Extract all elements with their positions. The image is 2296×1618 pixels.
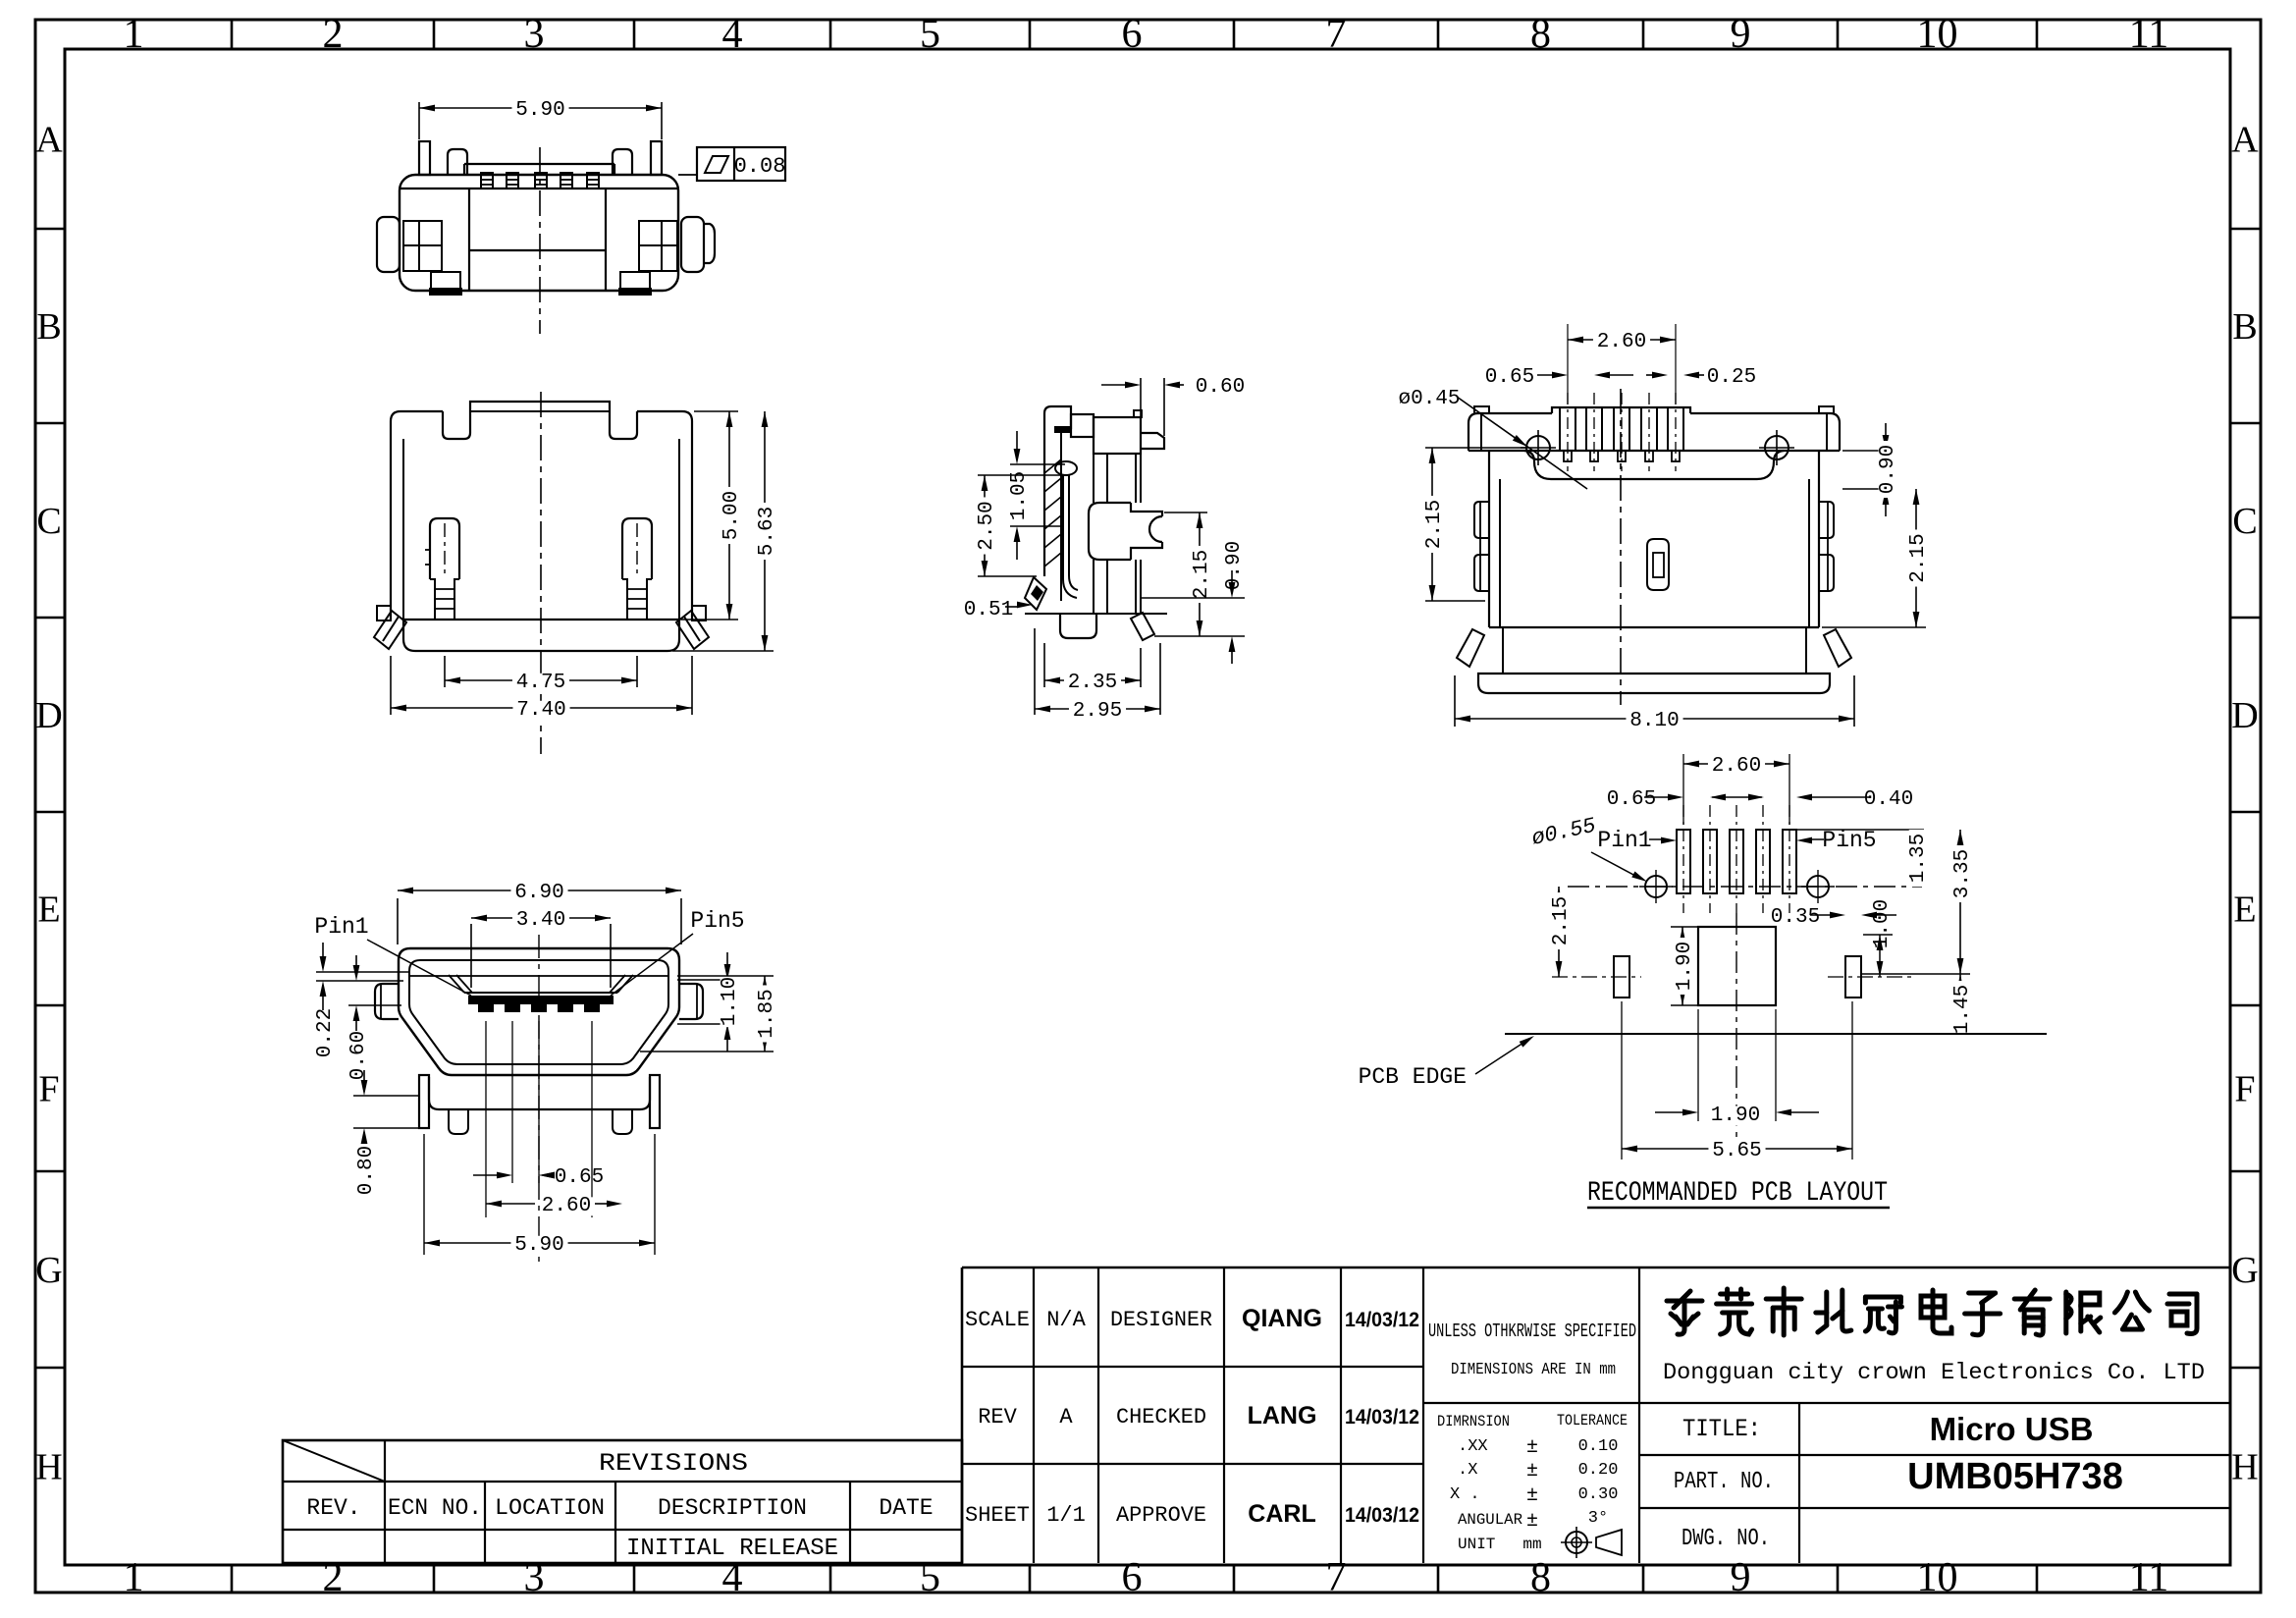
svg-text:DIMRNSION: DIMRNSION — [1437, 1413, 1510, 1430]
svg-text:5: 5 — [920, 12, 940, 57]
svg-text:0.51: 0.51 — [964, 599, 1013, 621]
svg-text:7.40: 7.40 — [516, 699, 565, 722]
svg-text:1: 1 — [124, 12, 144, 57]
svg-text:1.90: 1.90 — [1711, 1105, 1760, 1127]
svg-text:ANGULAR: ANGULAR — [1458, 1511, 1522, 1529]
svg-text:X .: X . — [1450, 1485, 1480, 1504]
svg-text:APPROVE: APPROVE — [1116, 1503, 1206, 1528]
svg-text:REV.: REV. — [306, 1495, 360, 1521]
svg-text:1.90: 1.90 — [1674, 942, 1696, 991]
svg-text:H: H — [2231, 1447, 2258, 1488]
svg-text:N/A: N/A — [1046, 1308, 1086, 1332]
svg-text:1.05: 1.05 — [1008, 471, 1031, 520]
svg-text:8: 8 — [1530, 12, 1551, 57]
svg-text:E: E — [2233, 890, 2256, 931]
svg-text:1.35: 1.35 — [1907, 834, 1930, 883]
svg-text:0.22: 0.22 — [314, 1008, 337, 1057]
svg-text:5.90: 5.90 — [515, 99, 564, 122]
svg-text:0.65: 0.65 — [1485, 366, 1534, 389]
svg-text:SHEET: SHEET — [965, 1503, 1030, 1528]
svg-text:DIMENSIONS ARE IN mm: DIMENSIONS ARE IN mm — [1451, 1361, 1616, 1379]
svg-text:11: 11 — [2129, 12, 2168, 57]
svg-text:D: D — [35, 695, 62, 736]
svg-text:14/03/12: 14/03/12 — [1345, 1406, 1419, 1429]
svg-text:CHECKED: CHECKED — [1116, 1405, 1206, 1429]
svg-text:10: 10 — [1917, 12, 1958, 57]
svg-text:2.60: 2.60 — [542, 1195, 591, 1217]
svg-text:3: 3 — [524, 12, 545, 57]
svg-text:±: ± — [1526, 1484, 1538, 1507]
svg-text:14/03/12: 14/03/12 — [1345, 1309, 1419, 1331]
svg-text:DATE: DATE — [879, 1495, 933, 1521]
svg-text:2.35: 2.35 — [1068, 672, 1117, 694]
svg-text:11: 11 — [2129, 1555, 2168, 1600]
svg-text:C: C — [36, 501, 61, 542]
svg-text:±: ± — [1526, 1460, 1538, 1483]
svg-text:RECOMMANDED PCB LAYOUT: RECOMMANDED PCB LAYOUT — [1587, 1178, 1888, 1209]
svg-text:0.65: 0.65 — [1607, 788, 1656, 811]
svg-text:mm: mm — [1522, 1536, 1541, 1553]
svg-text:LANG: LANG — [1248, 1402, 1317, 1429]
svg-text:REV: REV — [978, 1405, 1017, 1429]
svg-text:UMB05H738: UMB05H738 — [1907, 1456, 2123, 1497]
svg-text:2.60: 2.60 — [1712, 755, 1761, 778]
svg-text:A: A — [1059, 1405, 1073, 1429]
svg-text:14/03/12: 14/03/12 — [1345, 1504, 1419, 1527]
svg-text:G: G — [2231, 1250, 2258, 1291]
svg-text:ø0.45: ø0.45 — [1398, 388, 1460, 410]
svg-text:DWG. NO.: DWG. NO. — [1682, 1526, 1770, 1552]
svg-text:1.10: 1.10 — [719, 977, 741, 1026]
svg-text:1: 1 — [124, 1555, 144, 1600]
svg-text:0.60: 0.60 — [1196, 376, 1245, 399]
svg-text:CARL: CARL — [1248, 1500, 1315, 1528]
svg-text:H: H — [35, 1447, 62, 1488]
svg-text:A: A — [35, 120, 63, 161]
svg-text:A: A — [2231, 120, 2259, 161]
svg-text:Pin1: Pin1 — [1597, 828, 1651, 853]
svg-text:SCALE: SCALE — [965, 1308, 1030, 1332]
svg-text:2.15: 2.15 — [1550, 896, 1573, 945]
svg-text:5.00: 5.00 — [721, 491, 743, 540]
svg-text:G: G — [35, 1250, 62, 1291]
svg-text:0.90: 0.90 — [1877, 445, 1899, 494]
svg-text:1/1: 1/1 — [1046, 1503, 1086, 1528]
svg-text:UNLESS OTHKRWISE SPECIFIED: UNLESS OTHKRWISE SPECIFIED — [1428, 1321, 1636, 1342]
svg-text:2.15: 2.15 — [1423, 500, 1446, 549]
svg-text:5.63: 5.63 — [756, 507, 778, 556]
svg-text:0.08: 0.08 — [734, 154, 786, 179]
svg-text:±: ± — [1526, 1436, 1538, 1459]
svg-text:4.75: 4.75 — [516, 672, 565, 694]
svg-text:±: ± — [1526, 1510, 1538, 1533]
svg-text:0.25: 0.25 — [1707, 366, 1756, 389]
svg-text:F: F — [38, 1069, 59, 1110]
svg-text:8.10: 8.10 — [1629, 710, 1679, 732]
svg-text:6: 6 — [1122, 1555, 1143, 1600]
svg-text:1.00: 1.00 — [1871, 899, 1894, 948]
svg-text:0.65: 0.65 — [555, 1166, 604, 1189]
svg-text:3°: 3° — [1588, 1509, 1608, 1528]
svg-text:0.30: 0.30 — [1578, 1485, 1619, 1504]
svg-text:7: 7 — [1326, 12, 1347, 57]
svg-text:6.90: 6.90 — [514, 882, 563, 904]
svg-text:.XX: .XX — [1458, 1437, 1488, 1456]
svg-text:0.20: 0.20 — [1578, 1461, 1619, 1480]
svg-text:.X: .X — [1458, 1461, 1477, 1480]
svg-text:1.45: 1.45 — [1951, 985, 1974, 1034]
svg-text:0.90: 0.90 — [1223, 541, 1246, 590]
svg-text:0.10: 0.10 — [1578, 1437, 1619, 1456]
svg-text:3.35: 3.35 — [1951, 849, 1974, 898]
svg-text:Micro USB: Micro USB — [1930, 1411, 2094, 1447]
svg-text:2.60: 2.60 — [1597, 331, 1646, 353]
svg-text:C: C — [2232, 501, 2257, 542]
svg-text:B: B — [2232, 306, 2257, 348]
svg-text:TITLE:: TITLE: — [1682, 1415, 1761, 1443]
svg-text:REVISIONS: REVISIONS — [599, 1449, 748, 1478]
svg-text:4: 4 — [722, 12, 743, 57]
svg-text:0.60: 0.60 — [347, 1031, 370, 1080]
svg-text:2.95: 2.95 — [1073, 700, 1122, 723]
svg-text:2: 2 — [323, 12, 344, 57]
svg-text:Pin1: Pin1 — [314, 914, 368, 940]
svg-text:Dongguan city crown Electronic: Dongguan city crown Electronics Co. LTD — [1663, 1360, 2205, 1385]
svg-text:6: 6 — [1122, 12, 1143, 57]
svg-text:QIANG: QIANG — [1242, 1305, 1322, 1332]
svg-text:2.15: 2.15 — [1191, 550, 1213, 599]
svg-text:9: 9 — [1731, 12, 1751, 57]
svg-text:ECN NO.: ECN NO. — [388, 1495, 482, 1521]
svg-text:Pin5: Pin5 — [690, 908, 744, 934]
svg-text:2.15: 2.15 — [1907, 533, 1930, 582]
svg-text:F: F — [2234, 1069, 2255, 1110]
svg-text:3.40: 3.40 — [516, 909, 565, 932]
svg-text:9: 9 — [1731, 1555, 1751, 1600]
svg-text:D: D — [2231, 695, 2258, 736]
svg-text:1.85: 1.85 — [756, 989, 778, 1038]
svg-text:E: E — [37, 890, 60, 931]
svg-text:INITIAL RELEASE: INITIAL RELEASE — [626, 1536, 838, 1562]
svg-text:TOLERANCE: TOLERANCE — [1557, 1412, 1628, 1429]
svg-text:0.80: 0.80 — [355, 1146, 378, 1195]
svg-text:LOCATION: LOCATION — [495, 1495, 605, 1521]
svg-text:B: B — [36, 306, 61, 348]
svg-text:UNIT: UNIT — [1458, 1536, 1495, 1553]
svg-text:PART. NO.: PART. NO. — [1674, 1469, 1774, 1495]
svg-text:PCB EDGE: PCB EDGE — [1359, 1064, 1467, 1090]
svg-text:0.40: 0.40 — [1864, 788, 1913, 811]
svg-text:0.35: 0.35 — [1771, 906, 1820, 929]
svg-text:Pin5: Pin5 — [1822, 828, 1876, 853]
svg-text:7: 7 — [1326, 1555, 1347, 1600]
svg-text:8: 8 — [1530, 1555, 1551, 1600]
svg-text:2.50: 2.50 — [976, 501, 998, 550]
svg-text:5.65: 5.65 — [1712, 1140, 1761, 1162]
svg-text:10: 10 — [1917, 1555, 1958, 1600]
svg-text:DESCRIPTION: DESCRIPTION — [658, 1495, 807, 1521]
svg-text:DESIGNER: DESIGNER — [1110, 1308, 1212, 1332]
svg-text:5.90: 5.90 — [514, 1234, 563, 1257]
